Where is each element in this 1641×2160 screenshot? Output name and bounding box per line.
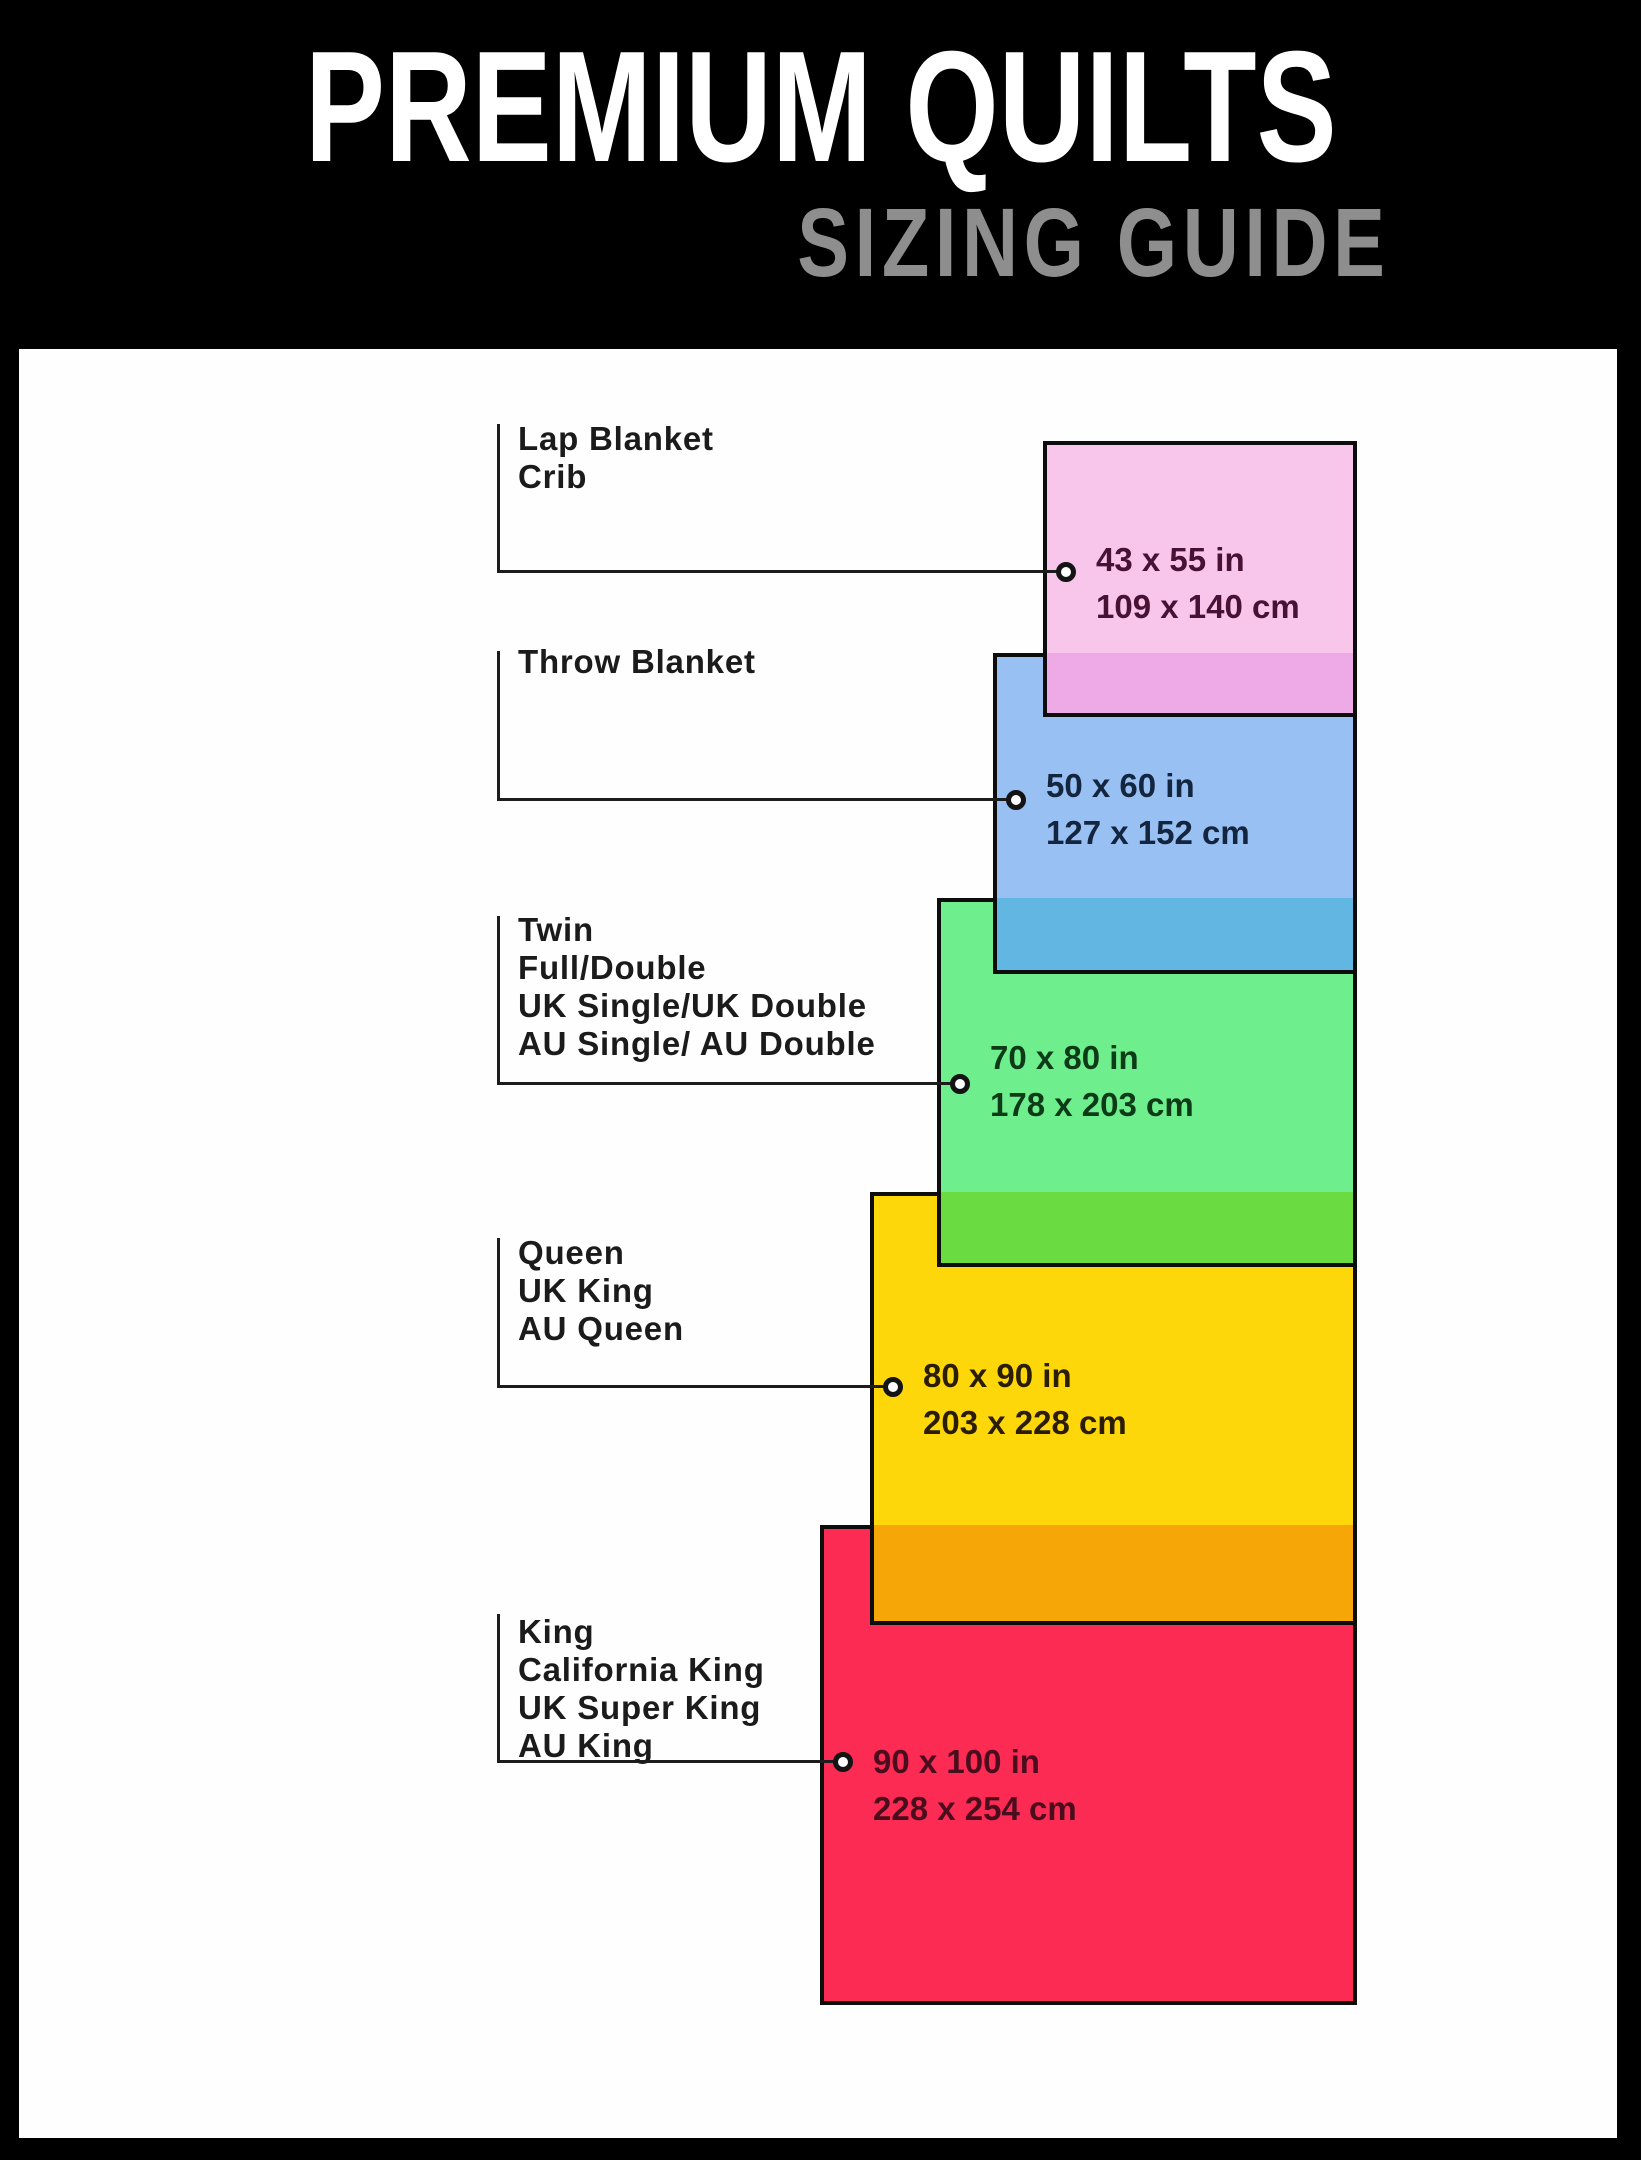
overlap-band-twin-queen [941, 1192, 1353, 1263]
label-line: AU Queen [518, 1310, 684, 1348]
connector-tick-queen [497, 1238, 500, 1388]
measurement-inches: 70 x 80 in [990, 1034, 1194, 1081]
label-king-california-king: King California King UK Super King AU Ki… [518, 1613, 765, 1765]
label-line: UK Single/UK Double [518, 987, 876, 1025]
label-line: Throw Blanket [518, 643, 756, 681]
measurement-lap: 43 x 55 in 109 x 140 cm [1096, 536, 1300, 630]
measurement-inches: 80 x 90 in [923, 1352, 1127, 1399]
connector-line-throw [498, 798, 1017, 801]
connector-line-twin [498, 1082, 961, 1085]
label-line: King [518, 1613, 765, 1651]
label-line: Lap Blanket [518, 420, 714, 458]
label-line: Full/Double [518, 949, 876, 987]
connector-tick-throw [497, 651, 500, 801]
marker-dot-queen [883, 1377, 903, 1397]
connector-tick-king [497, 1614, 500, 1763]
overlap-band-throw-twin [997, 898, 1353, 970]
marker-dot-throw [1006, 790, 1026, 810]
measurement-inches: 43 x 55 in [1096, 536, 1300, 583]
connector-tick-lap [497, 424, 500, 573]
measurement-queen: 80 x 90 in 203 x 228 cm [923, 1352, 1127, 1446]
label-lap-blanket-crib: Lap Blanket Crib [518, 420, 714, 496]
label-line: UK Super King [518, 1689, 765, 1727]
label-queen-uk-king-au-queen: Queen UK King AU Queen [518, 1234, 684, 1348]
label-throw-blanket: Throw Blanket [518, 643, 756, 681]
measurement-cm: 127 x 152 cm [1046, 809, 1250, 856]
label-line: AU Single/ AU Double [518, 1025, 876, 1063]
label-line: California King [518, 1651, 765, 1689]
measurement-cm: 228 x 254 cm [873, 1785, 1077, 1832]
label-line: Queen [518, 1234, 684, 1272]
marker-dot-lap [1056, 562, 1076, 582]
page-title: PREMIUM QUILTS [0, 28, 1641, 186]
measurement-twin: 70 x 80 in 178 x 203 cm [990, 1034, 1194, 1128]
connector-tick-twin [497, 916, 500, 1085]
page-subtitle: SIZING GUIDE [649, 194, 1391, 291]
marker-dot-twin [950, 1074, 970, 1094]
connector-line-lap [498, 570, 1067, 573]
connector-line-queen [498, 1385, 894, 1388]
label-line: Crib [518, 458, 714, 496]
measurement-king: 90 x 100 in 228 x 254 cm [873, 1738, 1077, 1832]
content-panel [19, 349, 1617, 2138]
overlap-band-lap-throw [1047, 653, 1353, 713]
measurement-inches: 90 x 100 in [873, 1738, 1077, 1785]
label-twin-full-double: Twin Full/Double UK Single/UK Double AU … [518, 911, 876, 1063]
label-line: UK King [518, 1272, 684, 1310]
measurement-cm: 178 x 203 cm [990, 1081, 1194, 1128]
label-line: Twin [518, 911, 876, 949]
measurement-inches: 50 x 60 in [1046, 762, 1250, 809]
measurement-cm: 203 x 228 cm [923, 1399, 1127, 1446]
connector-line-king [498, 1760, 844, 1763]
measurement-cm: 109 x 140 cm [1096, 583, 1300, 630]
infographic-canvas: PREMIUM QUILTS SIZING GUIDE Lap Blanket … [0, 0, 1641, 2160]
marker-dot-king [833, 1752, 853, 1772]
overlap-band-queen-king [874, 1525, 1353, 1621]
measurement-throw: 50 x 60 in 127 x 152 cm [1046, 762, 1250, 856]
